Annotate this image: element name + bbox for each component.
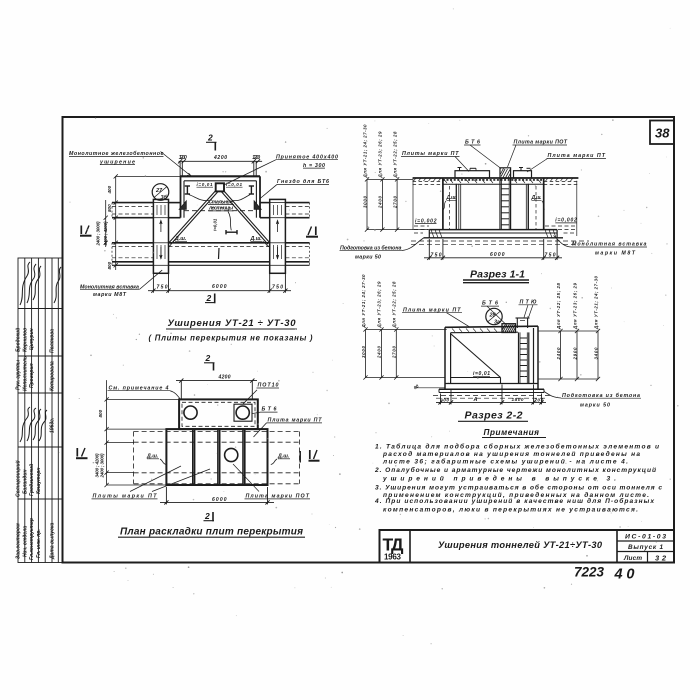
svg-text:3000: 3000 [362,195,367,208]
svg-text:БТ6: БТ6 [465,140,480,146]
svg-text:Ципурин: Ципурин [29,328,35,350]
svg-text:1963: 1963 [384,553,402,562]
svg-text:2700: 2700 [392,195,397,209]
svg-text:Копировала: Копировала [50,361,56,391]
svg-text:1963г.: 1963г. [50,418,56,433]
svg-text:Плиты марки ПТ: Плиты марки ПТ [402,151,459,157]
svg-text:200: 200 [439,397,449,402]
svg-text:Для УТ-23; 26; 29: Для УТ-23; 26; 29 [377,281,382,329]
svg-text:компенсаторов, люки в перек: компенсаторов, люки в перекрытиях не уст… [383,506,638,513]
svg-text:Проверил: Проверил [29,363,35,388]
svg-text:марки М8Т: марки М8Т [93,292,127,298]
svg-text:1800: 1800 [512,397,524,402]
svg-text:Уширения УТ-21 ÷ УТ-30: Уширения УТ-21 ÷ УТ-30 [168,318,297,329]
svg-text:Лист: Лист [623,555,642,562]
svg-text:( Плиты перекрытия не показ: ( Плиты перекрытия не показаны ) [149,334,313,343]
svg-text:Примечания: Примечания [484,428,540,437]
svg-text:750: 750 [157,285,168,291]
svg-text:2400: 2400 [556,347,561,361]
svg-text:ТД: ТД [383,535,405,555]
svg-text:2700: 2700 [392,345,397,359]
svg-text:Плита марки ПОТ: Плита марки ПОТ [514,140,568,146]
svg-text:Солнцевицкий: Солнцевицкий [15,460,22,497]
svg-text:Для УТ-22; 25; 28: Для УТ-22; 25; 28 [556,282,561,330]
svg-text:Кошутерн: Кошутерн [36,468,42,494]
svg-text:листе 36; габаритные схемы: листе 36; габаритные схемы уширений - на… [382,458,628,466]
svg-text:1. Таблица для подбора сбор: 1. Таблица для подбора сборных железобет… [375,443,659,451]
svg-text:Полякова: Полякова [50,329,56,353]
svg-text:750: 750 [545,253,556,259]
svg-text:400: 400 [107,185,112,194]
svg-text:7223: 7223 [574,565,604,580]
svg-text:Гродзинский: Гродзинский [28,464,35,496]
svg-text:3000: 3000 [361,345,366,358]
svg-text:марки М8Т: марки М8Т [595,251,636,257]
svg-text:2400 ; 3000): 2400 ; 3000) [96,221,101,246]
svg-text:32: 32 [655,553,667,562]
svg-text:Рук. группы: Рук. группы [16,359,22,390]
svg-text:Для УТ-23; 26; 29: Для УТ-23; 26; 29 [572,282,577,330]
svg-text:Выпуск 1: Выпуск 1 [628,544,663,551]
svg-text:Для УТ-21; 24; 27-30: Для УТ-21; 24; 27-30 [361,274,366,329]
svg-text:2900: 2900 [572,347,577,361]
svg-text:4200: 4200 [213,155,227,161]
svg-text:800: 800 [107,204,112,212]
svg-text:28: 28 [489,313,497,319]
svg-text:i=0,01: i=0,01 [197,182,213,187]
svg-text:6000: 6000 [490,252,505,258]
svg-text:Подготовка из бетона: Подготовка из бетона [562,392,640,399]
svg-text:Для УТ-22; 25; 28: Для УТ-22; 25; 28 [392,281,397,329]
svg-text:Бродский: Бродский [15,328,22,352]
svg-text:Баландин: Баландин [22,470,28,494]
svg-text:Монолитное железобетонное: Монолитное железобетонное [69,150,164,157]
svg-text:4200: 4200 [218,374,231,380]
svg-text:3. Уширения могут устраивать: 3. Уширения могут устраиваться в обе сто… [375,484,662,492]
svg-text:800: 800 [107,261,112,269]
svg-text:2. Опалубочные и арматурные: 2. Опалубочные и арматурные чертежи моно… [374,466,656,474]
svg-text:i=0,01: i=0,01 [213,218,218,231]
svg-text:Разрез 2-2: Разрез 2-2 [465,409,523,421]
svg-text:Дата выпуска: Дата выпуска [50,522,56,560]
svg-text:Для УТ-21; 24; 27-30: Для УТ-21; 24; 27-30 [362,124,367,179]
svg-text:А: А [473,397,478,403]
svg-text:Нач. отдела: Нач. отдела [22,526,28,557]
svg-text:Подготовка из бетона: Подготовка из бетона [340,244,402,251]
svg-text:Корнилов: Корнилов [22,328,28,352]
svg-text:3400 ; 4200): 3400 ; 4200) [94,453,99,477]
svg-text:Исполнитель: Исполнитель [22,356,28,391]
svg-text:6000: 6000 [212,284,227,290]
svg-text:2: 2 [204,511,210,521]
svg-text:План раскладки плит перекры: План раскладки плит перекрытия [120,526,303,537]
svg-text:2400 ; 3000): 2400 ; 3000) [99,453,104,478]
svg-text:1200: 1200 [179,155,187,161]
svg-text:Для УТ-23; 26; 29: Для УТ-23; 26; 29 [378,131,383,179]
svg-text:Уширения тоннелей УТ-21÷УТ-3: Уширения тоннелей УТ-21÷УТ-30 [438,540,603,550]
svg-text:2400: 2400 [378,195,383,209]
svg-text:6000: 6000 [212,497,227,503]
svg-text:2: 2 [205,353,211,363]
svg-text:3г: 3г [494,320,500,326]
svg-text:марки 50: марки 50 [355,254,381,260]
svg-text:ИС-01-03: ИС-01-03 [625,534,666,541]
svg-text:4. При использовании уширени: 4. При использовании уширений в качестве… [374,497,654,505]
svg-text:Для УТ-21; 24; 27-30: Для УТ-21; 24; 27-30 [593,275,598,330]
svg-text:2400: 2400 [377,345,382,359]
svg-text:марки 50: марки 50 [580,403,610,409]
svg-text:27: 27 [155,188,163,194]
svg-text:2: 2 [206,293,212,303]
svg-text:3400: 3400 [593,347,598,360]
svg-text:750: 750 [431,253,442,259]
svg-text:Разрез 1-1: Разрез 1-1 [470,269,525,281]
svg-text:200: 200 [533,398,543,403]
svg-text:2: 2 [207,133,213,143]
svg-text:800: 800 [98,409,103,417]
svg-text:Зав.сектором: Зав.сектором [16,523,22,559]
svg-text:Гл.конструктор: Гл.конструктор [29,518,35,560]
svg-text:3400 ; 4200): 3400 ; 4200) [103,221,108,245]
svg-text:750: 750 [272,285,283,291]
svg-text:Плита марки ПТ: Плита марки ПТ [548,153,606,159]
svg-text:Для УТ-22; 25; 28: Для УТ-22; 25; 28 [392,131,397,179]
svg-text:1200: 1200 [252,155,260,161]
svg-text:Гл. инж. пр.: Гл. инж. пр. [36,529,42,558]
svg-text:38: 38 [655,126,670,141]
